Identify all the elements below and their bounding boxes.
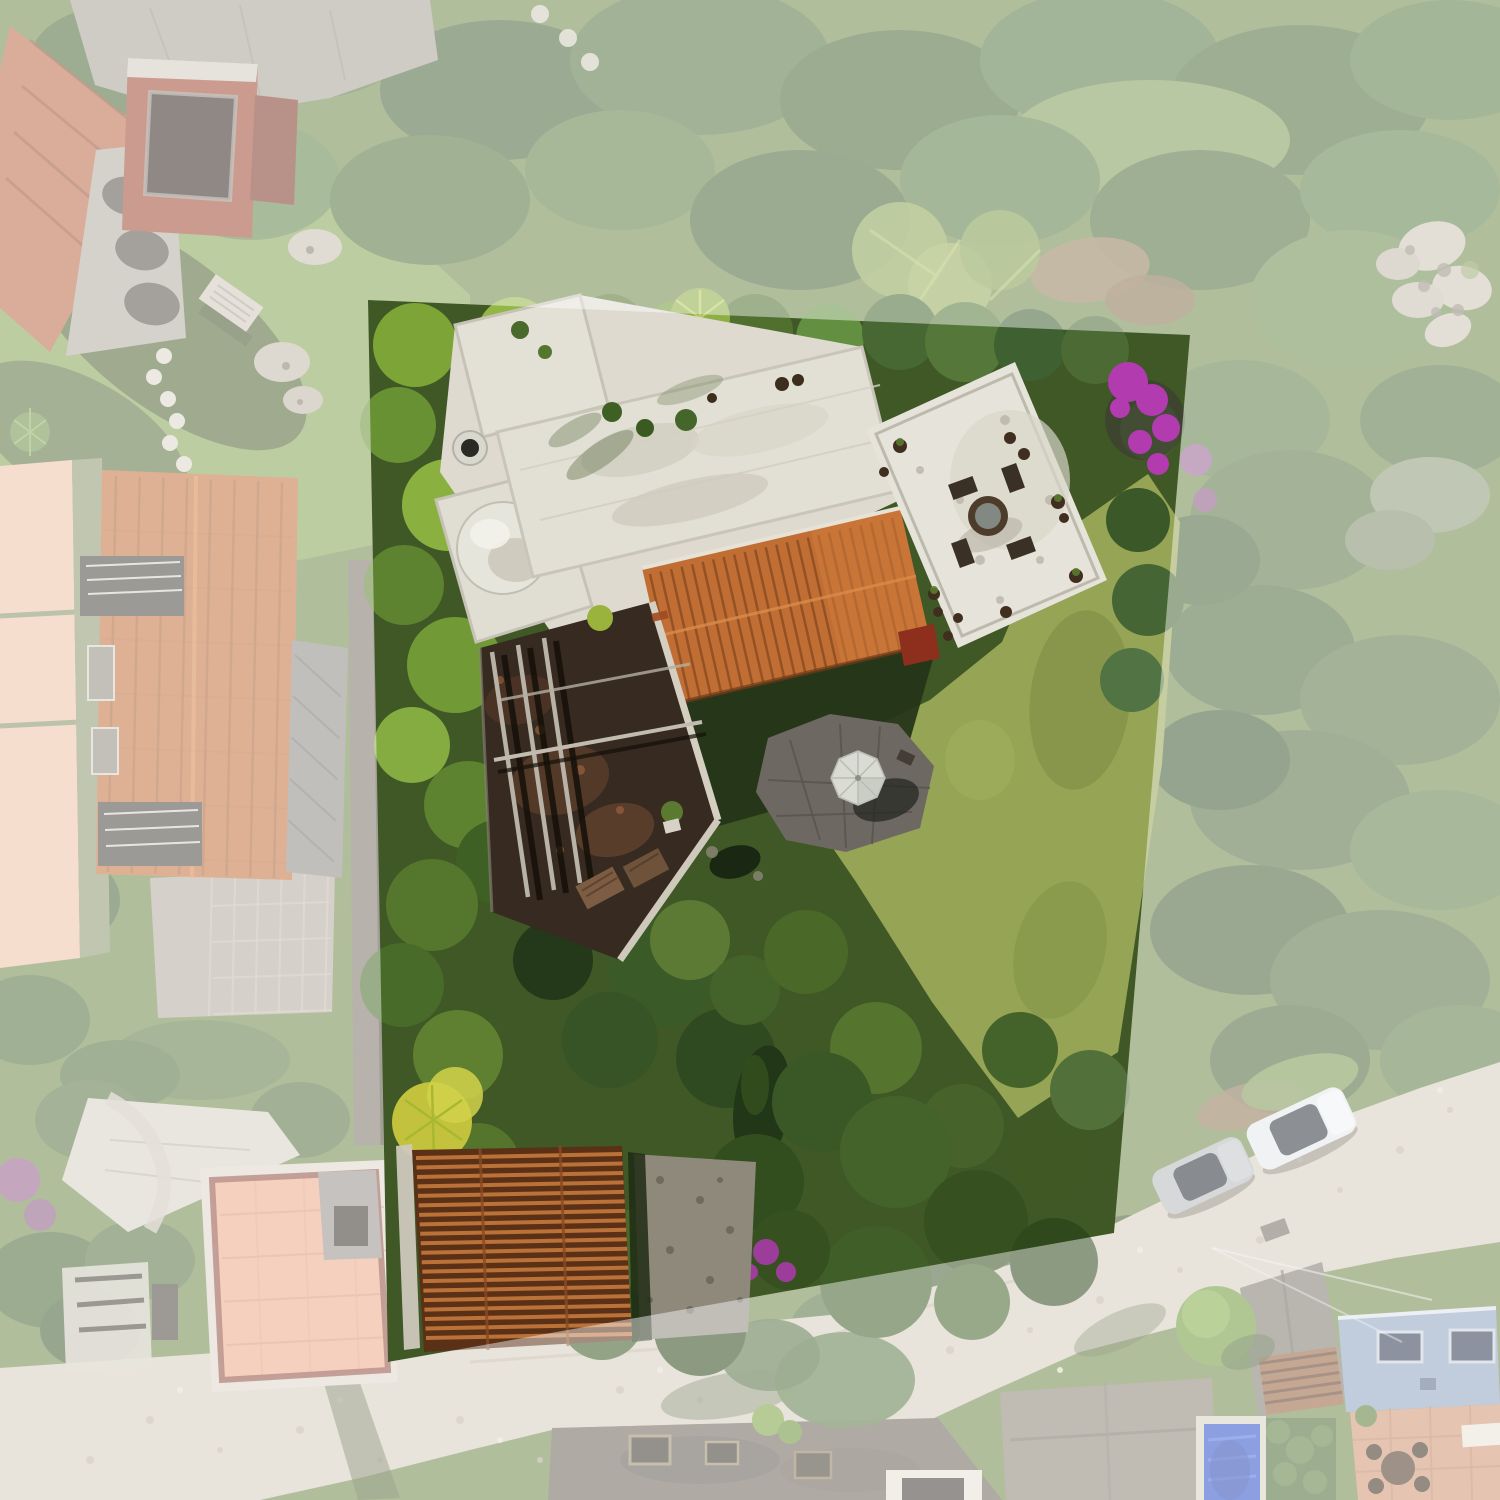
roof-pots bbox=[707, 393, 717, 403]
terrace-pots bbox=[943, 631, 953, 641]
lawn-mottle bbox=[945, 720, 1015, 800]
dome-highlight bbox=[470, 519, 510, 549]
roof-agave bbox=[636, 419, 654, 437]
shrub bbox=[374, 707, 450, 783]
terrace-pot-plants bbox=[896, 438, 904, 446]
terrace-pots bbox=[933, 607, 943, 617]
bougainvillea-bright bbox=[1152, 414, 1180, 442]
bougainvillea-south bbox=[753, 1239, 779, 1265]
bush bbox=[1050, 1050, 1130, 1130]
gravel-pebbles bbox=[666, 1246, 674, 1254]
bush bbox=[764, 910, 848, 994]
shrub bbox=[364, 545, 444, 625]
courtyard-potted-plant bbox=[661, 801, 683, 823]
terrace-pots bbox=[1018, 448, 1030, 460]
roof-plant bbox=[511, 321, 529, 339]
terrace-pots bbox=[1059, 513, 1069, 523]
terrace-speckle bbox=[996, 596, 1004, 604]
shrub bbox=[373, 303, 457, 387]
shrub bbox=[386, 859, 478, 951]
roof-pots bbox=[792, 374, 804, 386]
roof-pots bbox=[775, 377, 789, 391]
gravel-pebbles bbox=[696, 1196, 704, 1204]
aerial-photo bbox=[0, 0, 1500, 1500]
property-aerial-view bbox=[0, 0, 1500, 1500]
yellow-palm-highlight bbox=[427, 1067, 483, 1123]
conifer bbox=[562, 992, 658, 1088]
roof-plant bbox=[538, 345, 552, 359]
terrace-pot-plants bbox=[1054, 494, 1062, 502]
terrace-pots bbox=[879, 467, 889, 477]
gravel-pebbles bbox=[656, 1176, 664, 1184]
gravel-pebbles bbox=[726, 1226, 734, 1234]
bougainvillea-bright bbox=[1128, 430, 1152, 454]
edge-shrub bbox=[1106, 488, 1170, 552]
terrace-speckle bbox=[975, 555, 985, 565]
roof-agave bbox=[675, 409, 697, 431]
terrace-pots bbox=[953, 613, 963, 623]
bush bbox=[1012, 1124, 1084, 1196]
bougainvillea-south bbox=[776, 1262, 796, 1282]
courtyard-dapple bbox=[616, 806, 624, 814]
shrub bbox=[360, 387, 436, 463]
bougainvillea-bright bbox=[1136, 384, 1168, 416]
columnar-cypress-light bbox=[741, 1055, 769, 1115]
bougainvillea-bright bbox=[1147, 453, 1169, 475]
round-bush bbox=[587, 605, 613, 631]
gravel-pebbles bbox=[717, 1177, 723, 1183]
pond-stones bbox=[706, 846, 718, 858]
water-heater-core bbox=[461, 439, 479, 457]
terrace-speckle bbox=[1036, 556, 1044, 564]
terrace-pot-plants bbox=[930, 586, 938, 594]
terrace-table-glass bbox=[975, 503, 1001, 529]
terrace-pot-plants bbox=[1072, 568, 1080, 576]
terrace-pots bbox=[1004, 432, 1016, 444]
pond-stones bbox=[753, 871, 763, 881]
umbrella-pole bbox=[855, 775, 861, 781]
terrace-pots bbox=[1000, 606, 1012, 618]
terrace-speckle bbox=[916, 466, 924, 474]
edge-shrub bbox=[1100, 648, 1164, 712]
bush bbox=[982, 1012, 1058, 1088]
roof-agave bbox=[602, 402, 622, 422]
terrace-speckle bbox=[1000, 415, 1010, 425]
bougainvillea-bright bbox=[1110, 398, 1130, 418]
gravel-pebbles bbox=[706, 1276, 714, 1284]
